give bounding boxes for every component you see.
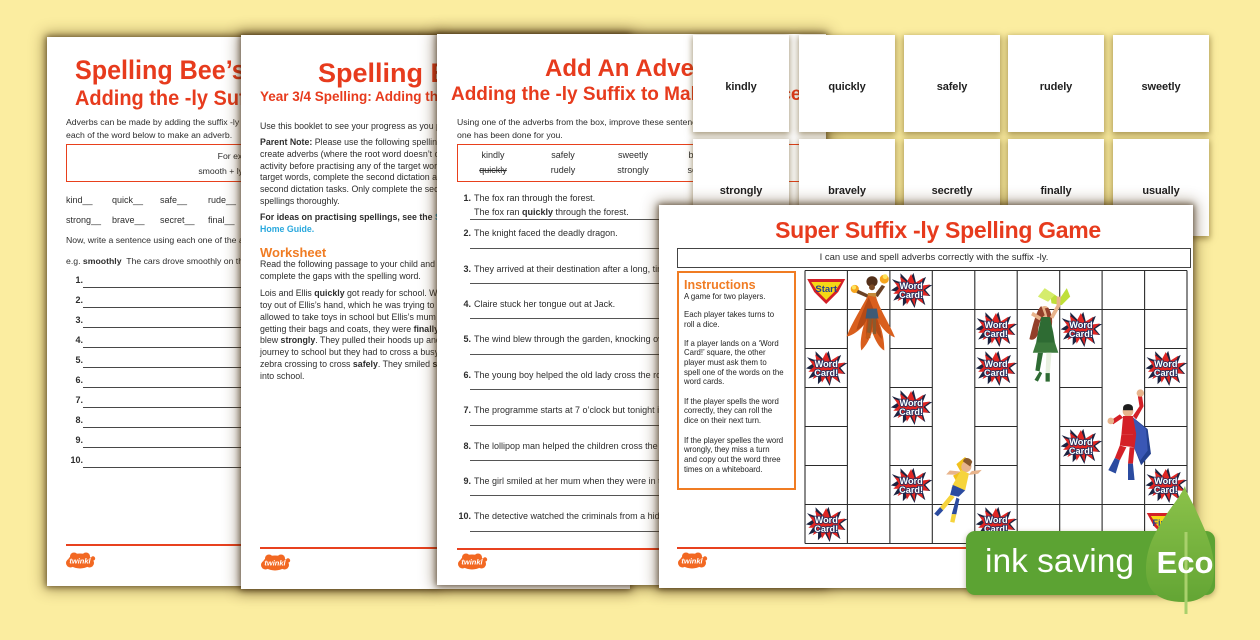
svg-text:Start: Start (815, 284, 837, 295)
svg-text:Eco: Eco (1157, 545, 1214, 580)
